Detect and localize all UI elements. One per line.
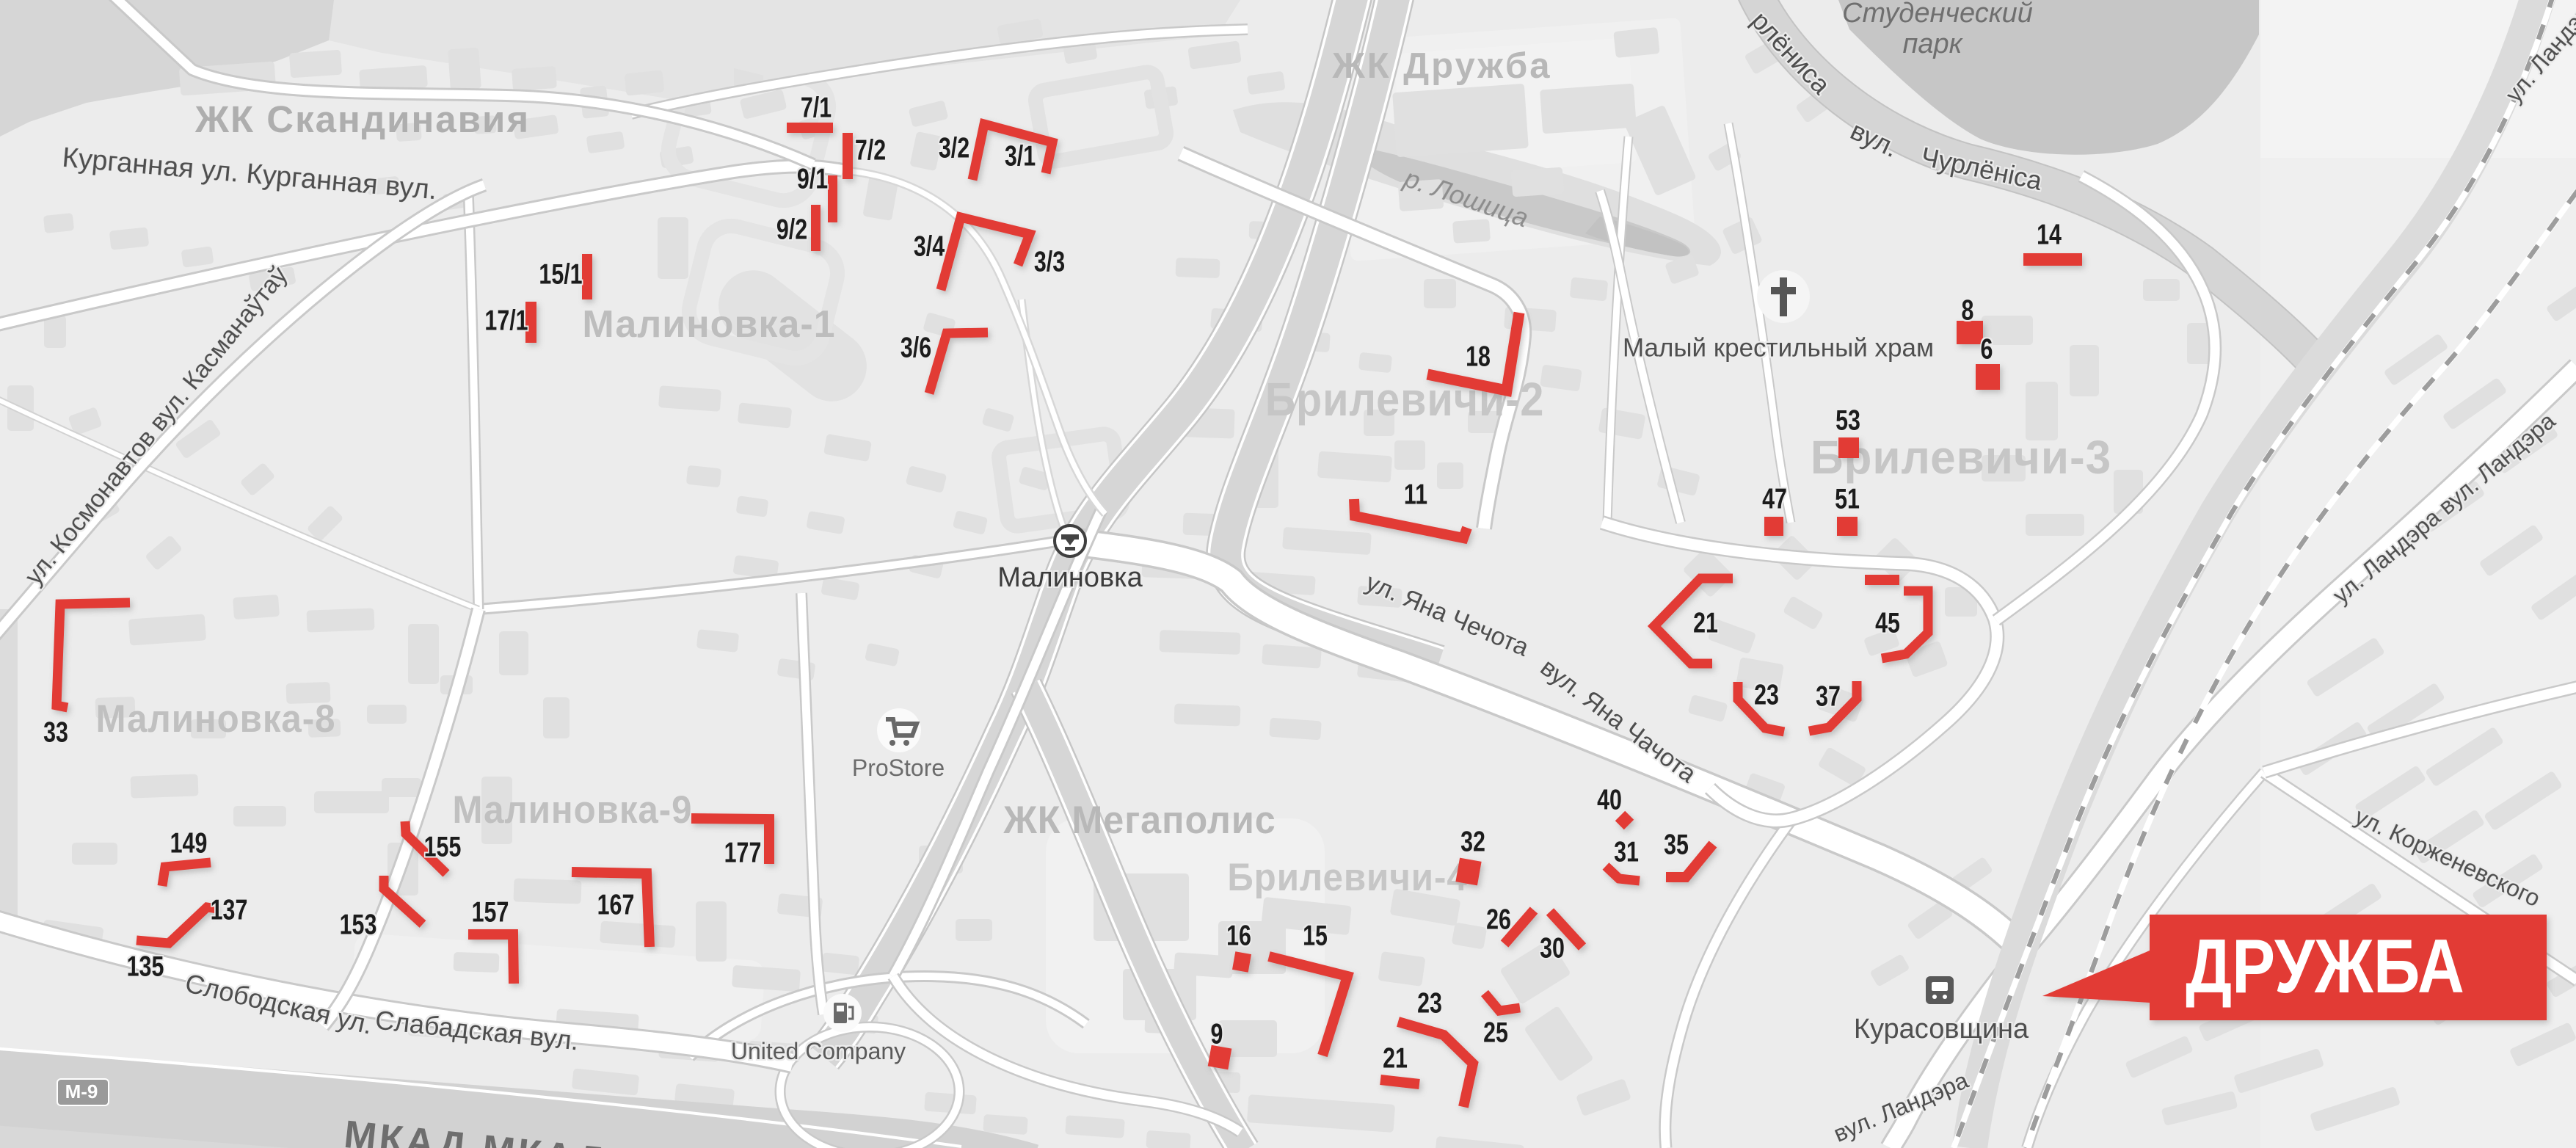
svg-text:Брилевичи-2: Брилевичи-2 [1265, 373, 1545, 425]
svg-text:ЖК Скандинавия: ЖК Скандинавия [194, 98, 530, 140]
svg-text:Малиновка-1: Малиновка-1 [582, 303, 835, 346]
svg-text:Брилевичи-4: Брилевичи-4 [1227, 855, 1467, 898]
svg-text:Малиновка-9: Малиновка-9 [453, 788, 693, 831]
svg-text:ЖК Дружба: ЖК Дружба [1331, 46, 1551, 86]
svg-text:Малиновка-8: Малиновка-8 [96, 697, 336, 740]
svg-text:ЖК Мегаполис: ЖК Мегаполис [1003, 798, 1276, 841]
